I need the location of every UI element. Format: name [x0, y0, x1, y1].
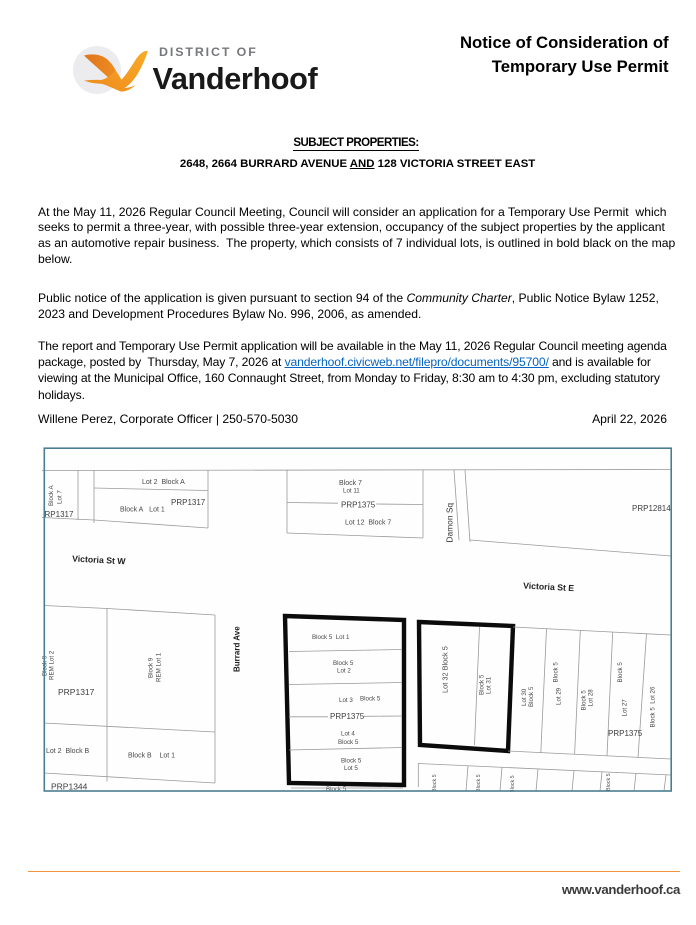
svg-text:Lot 27: Lot 27: [622, 699, 629, 717]
svg-text:Damon Sq: Damon Sq: [445, 503, 455, 543]
svg-text:Block 5: Block 5: [338, 739, 359, 746]
svg-text:Block 5: Block 5: [510, 775, 516, 792]
svg-text:Block 5: Block 5: [432, 774, 438, 792]
svg-text:Block 7: Block 7: [339, 480, 362, 487]
svg-text:Lot 2: Lot 2: [337, 668, 351, 675]
svg-text:Lot 4: Lot 4: [341, 731, 355, 738]
svg-text:PRP12814: PRP12814: [632, 504, 671, 513]
svg-text:Lot 28: Lot 28: [588, 689, 595, 707]
svg-text:Lot 30: Lot 30: [521, 688, 528, 706]
svg-text:Burrard Ave: Burrard Ave: [233, 626, 242, 672]
svg-text:PRP1317: PRP1317: [58, 687, 95, 697]
svg-text:Block 5: Block 5: [528, 686, 535, 707]
svg-text:Block 5: Block 5: [333, 660, 354, 667]
svg-text:Lot 7: Lot 7: [57, 490, 64, 504]
svg-text:Block 5: Block 5: [553, 662, 560, 683]
svg-text:PRP1375: PRP1375: [341, 501, 376, 510]
svg-text:REM Lot 1: REM Lot 1: [156, 652, 163, 682]
svg-text:PRP1375: PRP1375: [608, 729, 643, 738]
svg-text:REM Lot 2: REM Lot 2: [49, 650, 56, 680]
svg-text:Lot 12 Block 7: Lot 12 Block 7: [345, 520, 391, 527]
svg-text:PRP1344: PRP1344: [51, 782, 88, 792]
svg-text:PRP1317: PRP1317: [171, 498, 206, 507]
svg-text:Block 5: Block 5: [479, 674, 486, 695]
svg-text:Lot 5: Lot 5: [344, 765, 358, 772]
svg-text:Block 5 Lot 26: Block 5 Lot 26: [650, 686, 657, 727]
svg-text:Block A Lot 1: Block A Lot 1: [120, 507, 165, 514]
svg-text:Lot 32 Block 5: Lot 32 Block 5: [441, 646, 450, 693]
svg-text:Block 5: Block 5: [606, 773, 612, 791]
svg-text:Block 5: Block 5: [617, 662, 624, 683]
svg-text:Lot 2 Block B: Lot 2 Block B: [46, 748, 90, 755]
svg-text:PRP1375: PRP1375: [330, 712, 365, 721]
svg-text:Block 9: Block 9: [148, 657, 155, 678]
svg-text:Lot 11: Lot 11: [343, 488, 360, 495]
svg-text:Lot 29: Lot 29: [556, 687, 563, 705]
svg-text:Block 5: Block 5: [581, 690, 588, 711]
svg-text:Block 5: Block 5: [341, 758, 362, 765]
svg-text:Block B Lot 1: Block B Lot 1: [128, 753, 175, 760]
svg-text:Lot 31: Lot 31: [486, 676, 493, 694]
svg-text:Block 5: Block 5: [360, 696, 381, 703]
svg-text:Block 5 Lot 1: Block 5 Lot 1: [312, 634, 350, 641]
svg-text:Block 5: Block 5: [476, 774, 482, 792]
svg-text:Block A: Block A: [48, 484, 55, 506]
svg-text:Lot 2 Block A: Lot 2 Block A: [142, 479, 185, 486]
svg-text:Lot 3: Lot 3: [339, 697, 353, 704]
